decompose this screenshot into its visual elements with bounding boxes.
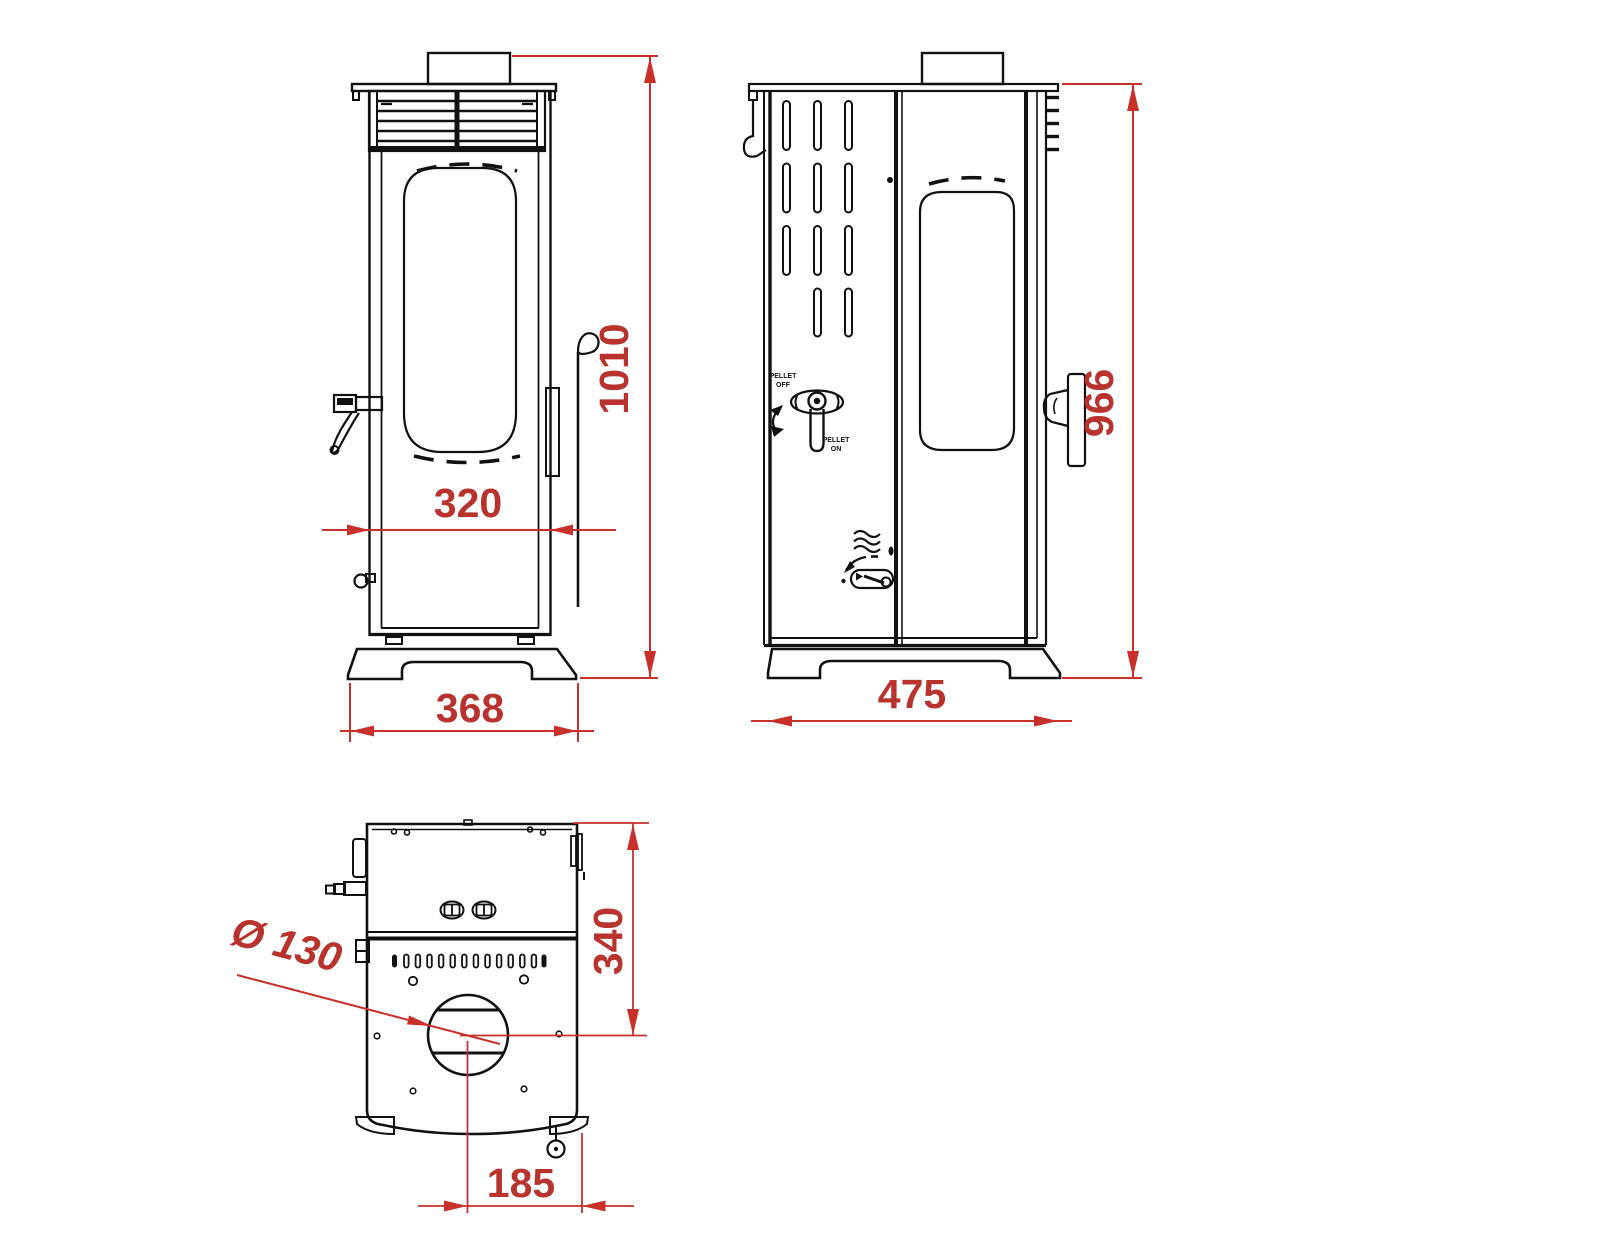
side-grille-ticks bbox=[1046, 98, 1059, 150]
side-vent-slots bbox=[783, 101, 852, 337]
side-rear-hook bbox=[744, 100, 766, 157]
dim-flue-diameter-value: Ø 130 bbox=[227, 908, 347, 981]
front-hinge-strip bbox=[546, 388, 559, 476]
dim-total-height-value: 1010 bbox=[591, 323, 637, 414]
front-pedestal-base bbox=[348, 649, 576, 679]
side-dashed-arc bbox=[929, 178, 1005, 184]
pellet-on-label-line2: ON bbox=[831, 446, 842, 453]
dim-flue-offset-value: 185 bbox=[487, 1160, 555, 1206]
heat-waves-icon bbox=[854, 531, 880, 552]
top-slot-row bbox=[392, 955, 547, 968]
dim-base-depth-value: 475 bbox=[878, 671, 946, 717]
top-view bbox=[326, 820, 588, 1158]
side-flue-collar bbox=[922, 53, 1003, 84]
technical-drawing: PELLET OFF PELLET ON bbox=[0, 0, 1600, 1236]
dim-body-height: 966 bbox=[1062, 84, 1142, 678]
pellet-lever-control: PELLET OFF PELLET ON bbox=[770, 373, 851, 453]
dim-back-to-flue-value: 340 bbox=[585, 907, 631, 975]
top-outline bbox=[367, 824, 577, 1134]
dim-back-to-flue: 340 bbox=[573, 823, 649, 1036]
top-oval-vents bbox=[441, 902, 496, 919]
dim-glass-width-value: 320 bbox=[434, 480, 502, 526]
dim-base-width: 368 bbox=[340, 678, 658, 742]
dim-flue-diameter: Ø 130 bbox=[227, 908, 500, 1044]
front-latch-knob bbox=[355, 574, 376, 588]
front-flue-collar bbox=[428, 53, 510, 84]
dim-flue-offset: 185 bbox=[418, 1133, 634, 1213]
side-top-plate bbox=[749, 84, 1058, 91]
pellet-on-label-line1: PELLET bbox=[823, 437, 851, 444]
side-view: PELLET OFF PELLET ON bbox=[744, 53, 1085, 678]
air-slider-control bbox=[841, 531, 893, 588]
dim-base-width-value: 368 bbox=[436, 685, 504, 731]
dim-base-depth: 475 bbox=[751, 671, 1072, 727]
dim-glass-width: 320 bbox=[322, 480, 616, 536]
front-grille bbox=[369, 91, 545, 151]
drawing-canvas: PELLET OFF PELLET ON bbox=[0, 0, 1600, 1236]
pellet-off-label-line1: PELLET bbox=[770, 373, 798, 380]
front-door-window bbox=[404, 168, 516, 452]
side-hinge-pin bbox=[887, 177, 893, 183]
front-view bbox=[331, 53, 599, 679]
front-door-handle bbox=[331, 395, 383, 454]
dim-body-height-value: 966 bbox=[1076, 369, 1122, 437]
pellet-off-label-line2: OFF bbox=[776, 382, 791, 389]
front-dashed-arc-bottom bbox=[414, 456, 520, 463]
side-window-outline bbox=[920, 192, 1014, 450]
